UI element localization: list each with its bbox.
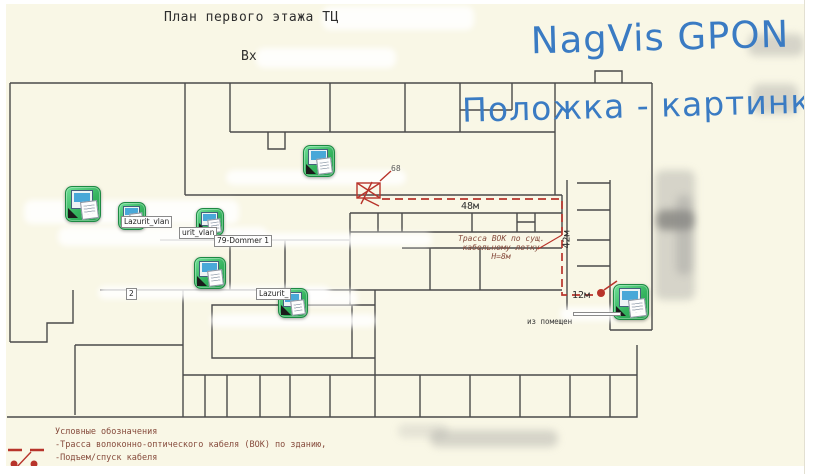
page-icon [207, 269, 224, 287]
host-label[interactable]: 2 [126, 288, 137, 300]
page-icon [290, 299, 306, 316]
room-exit-text: из помещен [527, 318, 572, 326]
measure-48m: 48м [461, 201, 479, 212]
legend-item-rise-drop: -Подъем/спуск кабеля [55, 454, 157, 463]
wedge-shape [281, 305, 291, 315]
scan-margin-left [0, 0, 6, 474]
page-icon [316, 157, 333, 175]
host-label[interactable]: Lazurit_vlan [121, 216, 172, 228]
host-label[interactable]: urit_vlan [179, 227, 217, 239]
crossed-junction-icon [357, 171, 391, 206]
route-note: Трасса ВОК по сущ. кабельному лотку Н=8м [458, 235, 544, 261]
scan-margin-bottom [0, 466, 828, 474]
junction-number: 68 [391, 165, 401, 174]
wedge-shape [306, 164, 316, 174]
measure-42m: 42м [562, 230, 573, 248]
plan-title: План первого этажа ТЦ [164, 11, 339, 25]
host-icon-host-1[interactable] [65, 186, 101, 222]
legend-heading: Условные обозначения [55, 428, 157, 437]
scan-margin-right [804, 0, 828, 474]
scan-margin-top [0, 0, 828, 4]
wedge-shape [197, 276, 207, 286]
cable-route-overlay [0, 0, 828, 474]
host-label[interactable]: 79-Dommer 1 [214, 235, 272, 247]
host-icon-host-4[interactable] [303, 145, 335, 177]
measure-12m: 12м [572, 290, 590, 301]
entrance-label: Вх [241, 50, 257, 64]
legend-item-cable-trace: -Трасса волоконно-оптического кабеля (ВО… [55, 441, 326, 450]
annotation-title: NagVis GPON [509, 12, 810, 63]
page-icon [628, 298, 647, 318]
route-note-line3: Н=8м [458, 253, 544, 262]
host-icon-host-5[interactable] [194, 257, 226, 289]
page-icon [80, 200, 99, 220]
nagvis-map: План первого этажа ТЦ Вх 68 48м 42м 12м … [0, 0, 828, 474]
cable-riser-dot [597, 289, 605, 297]
host-label[interactable]: Lazurit_ [256, 288, 291, 300]
host-label[interactable] [573, 312, 621, 316]
wedge-shape [68, 208, 78, 218]
